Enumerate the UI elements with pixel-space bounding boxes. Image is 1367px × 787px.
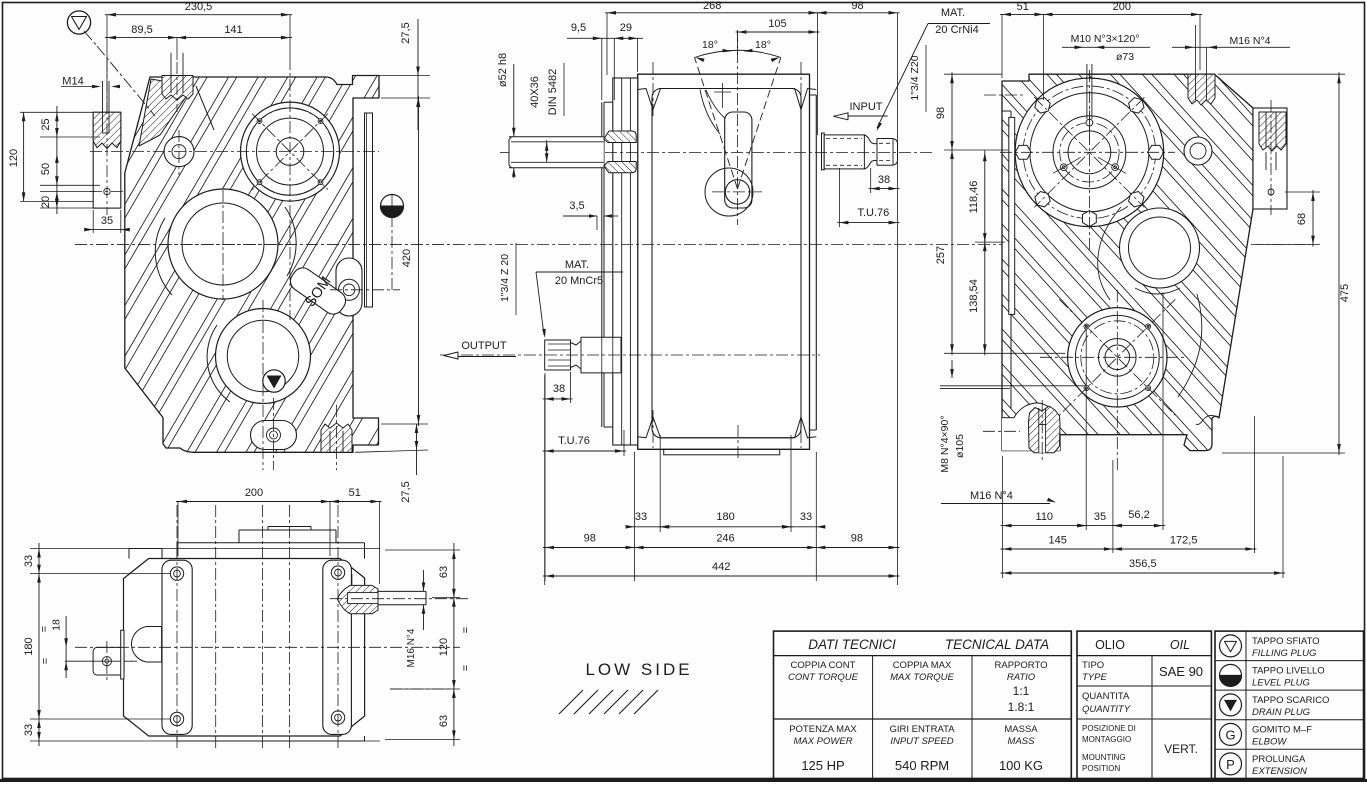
svg-text:P: P	[1226, 757, 1235, 772]
svg-text:MONTAGGIO: MONTAGGIO	[1082, 735, 1131, 744]
svg-text:DIN 5482: DIN 5482	[547, 69, 559, 115]
svg-text:M16 N°4: M16 N°4	[1230, 35, 1271, 47]
svg-text:246: 246	[716, 533, 734, 545]
svg-text:M14: M14	[62, 76, 83, 88]
svg-text:ø105: ø105	[954, 434, 966, 458]
svg-text:RATIO: RATIO	[1007, 672, 1036, 683]
svg-text:T.U.76: T.U.76	[558, 435, 590, 447]
svg-text:18°: 18°	[702, 39, 718, 51]
svg-text:OLIO: OLIO	[1095, 638, 1125, 652]
svg-text:120: 120	[438, 638, 450, 656]
svg-text:125 HP: 125 HP	[801, 758, 844, 773]
svg-text:35: 35	[1094, 511, 1106, 523]
svg-text:MAX POWER: MAX POWER	[793, 736, 852, 747]
svg-text:TAPPO LIVELLO: TAPPO LIVELLO	[1252, 665, 1325, 676]
svg-text:9,5: 9,5	[571, 22, 586, 34]
svg-text:51: 51	[349, 487, 361, 499]
svg-text:118,46: 118,46	[968, 181, 980, 214]
svg-text:MASS: MASS	[1008, 736, 1036, 747]
svg-text:SAE 90: SAE 90	[1159, 664, 1203, 679]
svg-text:98: 98	[851, 0, 863, 12]
svg-text:COPPIA MAX: COPPIA MAX	[893, 660, 952, 671]
svg-text:ELBOW: ELBOW	[1252, 736, 1287, 747]
svg-text:RAPPORTO: RAPPORTO	[995, 660, 1048, 671]
svg-text:G: G	[1225, 727, 1235, 742]
svg-text:20: 20	[40, 196, 52, 208]
svg-text:180: 180	[716, 511, 734, 523]
svg-text:TAPPO SFIATO: TAPPO SFIATO	[1252, 636, 1320, 647]
svg-text:CONT TORQUE: CONT TORQUE	[788, 672, 859, 683]
svg-text:51: 51	[1017, 1, 1029, 13]
svg-text:141: 141	[224, 24, 242, 36]
svg-text:GOMITO M–F: GOMITO M–F	[1252, 724, 1312, 735]
svg-text:ø73: ø73	[1116, 51, 1134, 63]
svg-text:27,5: 27,5	[400, 22, 412, 43]
svg-text:QUANTITA: QUANTITA	[1082, 691, 1130, 702]
svg-text:GIRI ENTRATA: GIRI ENTRATA	[889, 724, 955, 735]
svg-text:18: 18	[51, 619, 63, 631]
svg-text:27,5: 27,5	[400, 481, 412, 502]
svg-text:100 KG: 100 KG	[999, 758, 1043, 773]
svg-text:172,5: 172,5	[1170, 535, 1198, 547]
svg-text:98: 98	[935, 107, 947, 119]
svg-text:TECNICAL DATA: TECNICAL DATA	[945, 637, 1049, 652]
svg-text:145: 145	[1049, 535, 1067, 547]
svg-text:29: 29	[620, 22, 632, 34]
svg-text:=: =	[39, 626, 51, 632]
svg-text:200: 200	[245, 487, 263, 499]
svg-text:257: 257	[935, 246, 947, 264]
svg-text:=: =	[460, 627, 472, 633]
svg-text:M16 N°4: M16 N°4	[970, 490, 1013, 502]
svg-text:25: 25	[40, 118, 52, 130]
svg-text:475: 475	[1339, 284, 1351, 302]
svg-text:33: 33	[23, 724, 35, 736]
svg-text:QUANTITY: QUANTITY	[1082, 704, 1131, 715]
svg-text:38: 38	[878, 174, 890, 186]
svg-text:442: 442	[712, 561, 730, 573]
svg-text:INPUT: INPUT	[850, 101, 883, 113]
svg-text:105: 105	[768, 18, 786, 30]
svg-text:FILLING PLUG: FILLING PLUG	[1252, 648, 1316, 659]
svg-text:63: 63	[438, 715, 450, 727]
svg-text:98: 98	[851, 533, 863, 545]
svg-text:20 MnCr5: 20 MnCr5	[555, 275, 603, 287]
svg-text:LEVEL PLUG: LEVEL PLUG	[1252, 677, 1310, 688]
svg-text:MAX TORQUE: MAX TORQUE	[890, 672, 954, 683]
svg-text:230,5: 230,5	[185, 1, 213, 13]
svg-text:40X36: 40X36	[529, 76, 541, 108]
svg-text:1"3/4 Z 20: 1"3/4 Z 20	[499, 254, 511, 302]
svg-text:120: 120	[8, 149, 20, 167]
svg-text:LOW SIDE: LOW SIDE	[585, 660, 692, 679]
svg-text:56,2: 56,2	[1128, 509, 1149, 521]
svg-text:TYPE: TYPE	[1082, 672, 1107, 683]
svg-text:3,5: 3,5	[569, 200, 584, 212]
svg-text:33: 33	[800, 511, 812, 523]
svg-text:TAPPO SCARICO: TAPPO SCARICO	[1252, 695, 1329, 706]
svg-text:POSITION: POSITION	[1082, 764, 1120, 773]
svg-text:COPPIA CONT: COPPIA CONT	[791, 660, 856, 671]
svg-text:1.8:1: 1.8:1	[1008, 700, 1035, 714]
svg-text:MAT.: MAT.	[565, 259, 589, 271]
svg-text:POTENZA MAX: POTENZA MAX	[789, 724, 857, 735]
svg-text:89,5: 89,5	[131, 24, 152, 36]
svg-text:98: 98	[584, 533, 596, 545]
svg-text:420: 420	[401, 249, 413, 267]
svg-text:ø52 h8: ø52 h8	[497, 53, 509, 87]
svg-text:EXTENSION: EXTENSION	[1252, 766, 1307, 777]
svg-text:=: =	[460, 665, 472, 671]
svg-text:M16 N°4: M16 N°4	[406, 628, 417, 667]
svg-text:68: 68	[1296, 213, 1308, 225]
svg-text:OUTPUT: OUTPUT	[461, 340, 507, 352]
svg-text:INPUT SPEED: INPUT SPEED	[890, 736, 953, 747]
svg-text:33: 33	[635, 511, 647, 523]
svg-text:18°: 18°	[755, 39, 771, 51]
svg-text:MAT.: MAT.	[941, 7, 965, 19]
svg-text:MOUNTING: MOUNTING	[1082, 753, 1126, 762]
svg-text:180: 180	[23, 637, 35, 655]
svg-text:MASSA: MASSA	[1004, 724, 1038, 735]
svg-text:1"3/4 Z20: 1"3/4 Z20	[909, 55, 921, 100]
svg-text:38: 38	[553, 383, 565, 395]
svg-text:=: =	[39, 658, 51, 664]
svg-text:VERT.: VERT.	[1164, 742, 1198, 756]
svg-text:OIL: OIL	[1170, 638, 1190, 652]
svg-text:TIPO: TIPO	[1082, 660, 1104, 671]
svg-text:33: 33	[23, 555, 35, 567]
svg-text:138,54: 138,54	[968, 279, 980, 313]
svg-text:PROLUNGA: PROLUNGA	[1252, 754, 1306, 765]
svg-text:110: 110	[1036, 511, 1054, 523]
svg-text:63: 63	[438, 566, 450, 578]
svg-text:50: 50	[40, 163, 52, 175]
svg-text:35: 35	[101, 215, 113, 227]
svg-text:M10 N°3×120°: M10 N°3×120°	[1071, 33, 1140, 45]
svg-text:200: 200	[1113, 1, 1131, 13]
svg-text:540 RPM: 540 RPM	[895, 758, 949, 773]
svg-text:DATI TECNICI: DATI TECNICI	[808, 637, 896, 652]
svg-text:M8 N°4×90°: M8 N°4×90°	[939, 415, 951, 472]
svg-text:20 CrNi4: 20 CrNi4	[935, 24, 978, 36]
svg-text:356,5: 356,5	[1129, 558, 1157, 570]
svg-text:T.U.76: T.U.76	[858, 207, 890, 219]
svg-text:268: 268	[703, 0, 721, 12]
svg-text:DRAIN PLUG: DRAIN PLUG	[1252, 707, 1310, 718]
svg-text:1:1: 1:1	[1013, 684, 1030, 698]
svg-text:POSIZIONE DI: POSIZIONE DI	[1082, 724, 1136, 733]
